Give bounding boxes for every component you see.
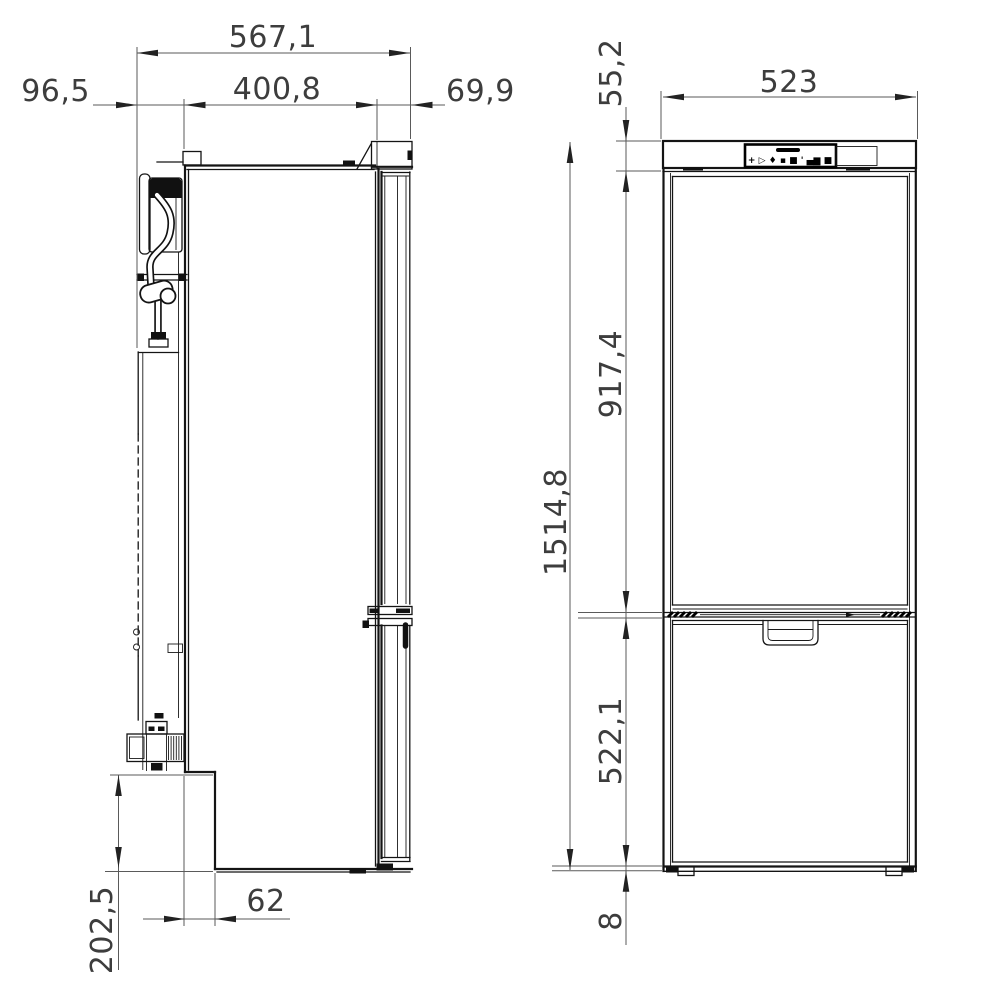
dim-upper-door-height: 917,4 [594,330,629,418]
background [0,0,1000,1000]
dim-bottom-clearance: 8 [594,911,629,931]
side-foot [350,869,367,874]
dim-overall-depth: 567,1 [229,20,317,55]
brand-logo [776,148,800,152]
dim-door-thickness: 69,9 [446,74,515,109]
dim-lower-door-height: 522,1 [594,697,629,785]
pipe-coupling [151,332,166,339]
refrigerator-dimension-drawing: + ▷ ♦ ▪ ■ ' ▄▆ ■ [0,0,1000,1000]
foot-right [902,867,914,873]
foot-left [666,867,678,873]
top-tab [343,161,355,167]
dim-recess-height: 202,5 [85,886,120,974]
technical-drawing-page: + ▷ ♦ ▪ ■ ' ▄▆ ■ [0,0,1000,1000]
dim-width: 523 [760,65,819,100]
dim-body-depth: 400,8 [233,72,321,107]
dim-cooling-unit-depth: 96,5 [21,74,90,109]
dim-recess-depth: 62 [246,884,285,919]
control-panel-icons: + ▷ ♦ ▪ ■ ' ▄▆ ■ [748,156,832,166]
dim-overall-height: 1514,8 [539,468,574,576]
housing-notch [408,151,413,161]
door-foot [377,864,394,871]
dim-top-panel-height: 55,2 [594,39,629,108]
